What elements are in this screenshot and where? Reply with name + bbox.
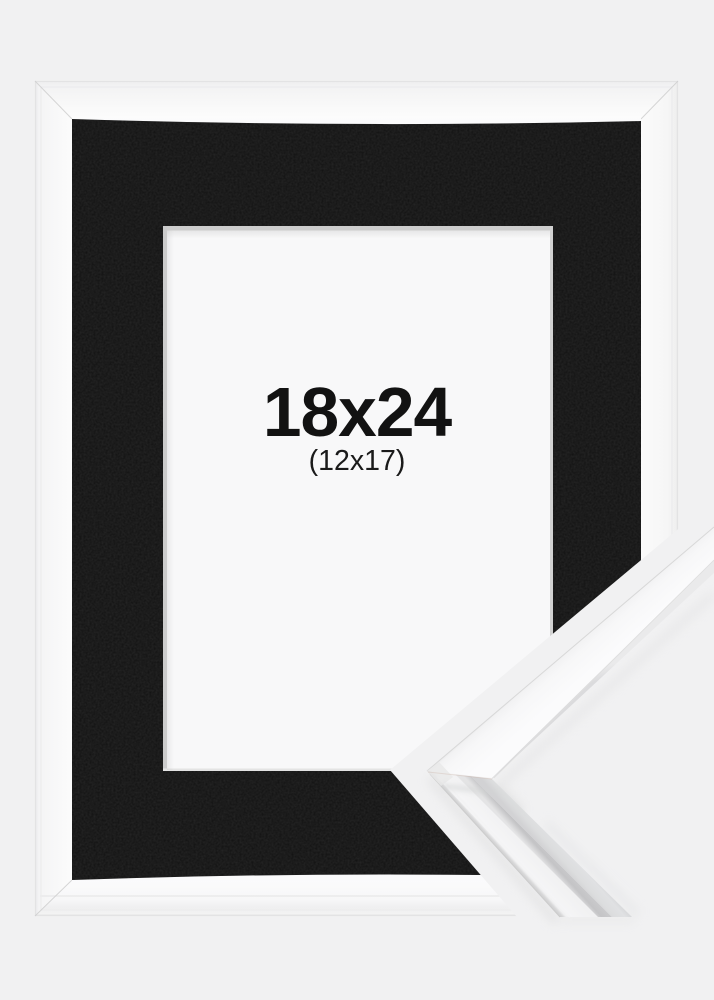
svg-text:18x24: 18x24 — [263, 373, 453, 451]
svg-text:(12x17): (12x17) — [309, 445, 406, 477]
